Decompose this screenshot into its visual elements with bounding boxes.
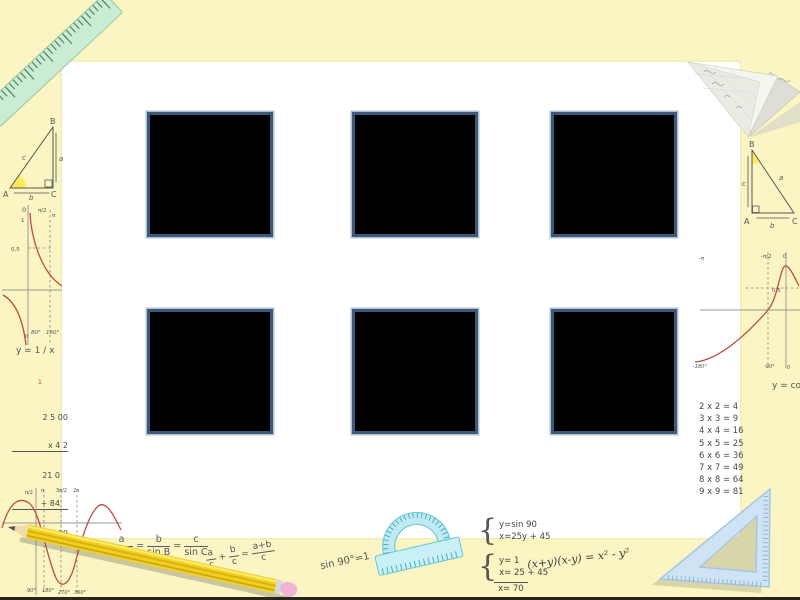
- svg-text:A: A: [744, 217, 750, 226]
- equation-system-1: { y=sin 90 x=25y + 45: [478, 513, 550, 548]
- brace: {: [478, 549, 497, 584]
- svg-text:b: b: [770, 222, 775, 230]
- svg-text:0,5: 0,5: [772, 288, 781, 294]
- svg-text:360°: 360°: [74, 590, 87, 596]
- fraction-identity-equation: ac + bc = a+bc: [205, 540, 276, 570]
- svg-text:y = 1 / x: y = 1 / x: [16, 346, 55, 356]
- svg-text:1: 1: [21, 218, 25, 224]
- image-placeholder-2[interactable]: [352, 112, 478, 237]
- svg-text:a: a: [779, 174, 783, 182]
- svg-text:c: c: [742, 180, 746, 188]
- svg-text:160°: 160°: [46, 330, 59, 336]
- image-placeholder-6[interactable]: [551, 309, 677, 434]
- svg-text:B: B: [749, 140, 755, 149]
- svg-text:π/2: π/2: [38, 208, 47, 214]
- svg-text:y = cos x: y = cos x: [772, 381, 800, 391]
- svg-text:π: π: [52, 213, 56, 219]
- svg-text:b: b: [29, 194, 34, 202]
- image-placeholder-1[interactable]: [147, 112, 273, 237]
- svg-text:A: A: [3, 190, 9, 199]
- image-placeholder-5[interactable]: [352, 309, 478, 434]
- table-row: 6 x 6 = 36: [699, 450, 744, 462]
- table-row: 7 x 7 = 49: [699, 462, 744, 474]
- svg-text:C: C: [51, 190, 57, 199]
- image-placeholder-3[interactable]: [551, 112, 677, 237]
- svg-text:270°: 270°: [58, 590, 71, 596]
- svg-text:90°: 90°: [27, 588, 36, 594]
- svg-text:0: 0: [25, 334, 29, 340]
- triangle-diagram-left: B A C c a b: [3, 117, 63, 202]
- svg-text:0,5: 0,5: [11, 247, 20, 253]
- image-placeholder-4[interactable]: [147, 309, 273, 434]
- reciprocal-graph: 0 1 π/2 π 0,5 0 80° 160° y = 1 / x: [2, 205, 62, 356]
- svg-text:c: c: [22, 154, 26, 162]
- sin-90-equation: sin 90°=1: [319, 551, 370, 572]
- table-row: 9 x 9 = 81: [699, 486, 744, 498]
- svg-text:C: C: [792, 217, 798, 226]
- table-row: 2 x 2 = 4: [699, 401, 744, 413]
- brace: {: [478, 513, 497, 548]
- svg-text:-90°: -90°: [764, 364, 775, 370]
- law-of-sines-equation: asin A = bsin B = csin C: [110, 535, 208, 557]
- multiplication-table: 2 x 2 = 4 3 x 3 = 9 4 x 4 = 16 5 x 5 = 2…: [699, 401, 744, 499]
- system-2-result: x= 70: [494, 582, 528, 594]
- table-row: 3 x 3 = 9: [699, 413, 744, 425]
- svg-text:-π/2: -π/2: [761, 254, 772, 260]
- table-row: 5 x 5 = 25: [699, 438, 744, 450]
- svg-text:0: 0: [787, 365, 790, 371]
- svg-text:0: 0: [22, 206, 26, 214]
- triangle-diagram-right: B A C c a b: [742, 140, 798, 230]
- long-multiplication: 1 2 5 00 x 4 2 21 0 + 84 105 0 00: [12, 384, 68, 557]
- table-row: 8 x 8 = 64: [699, 474, 744, 486]
- svg-text:180°: 180°: [42, 588, 55, 594]
- svg-text:B: B: [50, 117, 56, 126]
- svg-text:80°: 80°: [31, 330, 41, 336]
- math-template-background: 1 2 5 00 x 4 2 21 0 + 84 105 0 00 asin A…: [0, 0, 800, 600]
- svg-text:0: 0: [783, 254, 787, 260]
- table-row: 4 x 4 = 16: [699, 425, 744, 437]
